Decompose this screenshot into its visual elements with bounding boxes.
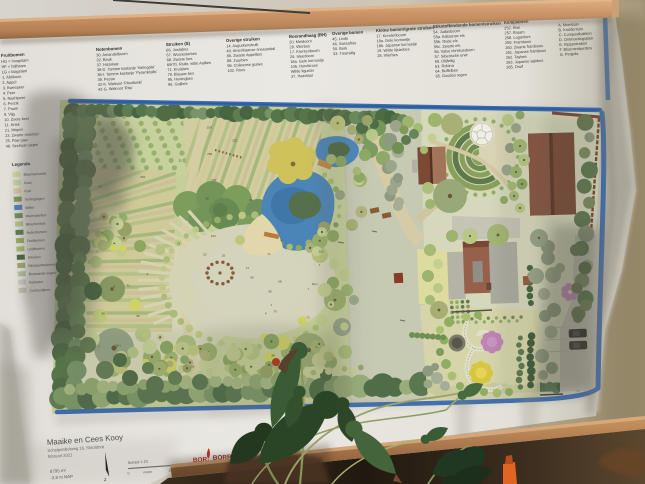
svg-text:265. Druif: 265. Druif	[506, 64, 524, 70]
svg-text:102. Roos: 102. Roos	[227, 67, 245, 73]
svg-text:28. Vlierbes: 28. Vlierbes	[377, 52, 398, 58]
svg-text:96. Gojibes: 96. Gojibes	[168, 81, 188, 87]
svg-text:G. Pergola: G. Pergola	[560, 51, 580, 57]
